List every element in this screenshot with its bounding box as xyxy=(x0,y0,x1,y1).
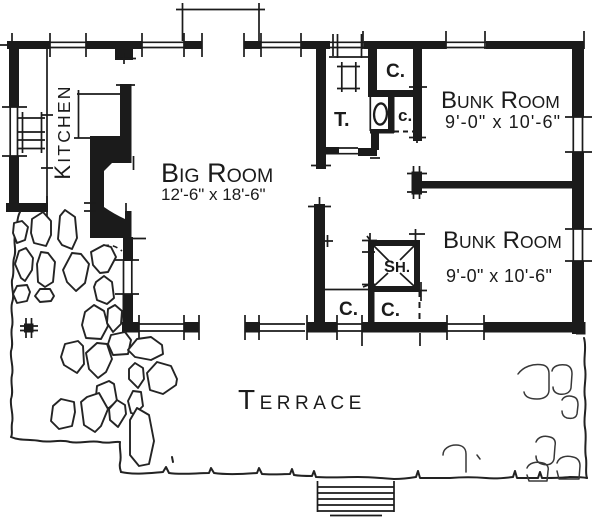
svg-text:BUNK ROOM: BUNK ROOM xyxy=(443,227,562,254)
svg-text:C.: C. xyxy=(339,299,358,320)
svg-text:KITCHEN: KITCHEN xyxy=(50,84,75,179)
svg-text:BUNK ROOM: BUNK ROOM xyxy=(441,87,560,114)
svg-text:9'-0" x 10'-6": 9'-0" x 10'-6" xyxy=(445,112,561,132)
svg-text:12'-6" x 18'-6": 12'-6" x 18'-6" xyxy=(161,185,266,204)
svg-text:C.: C. xyxy=(386,61,405,82)
svg-text:c.: c. xyxy=(398,106,412,125)
svg-text:C.: C. xyxy=(381,300,400,321)
svg-text:T.: T. xyxy=(334,109,350,131)
svg-text:SH.: SH. xyxy=(384,258,410,276)
svg-text:9'-0" x 10'-6": 9'-0" x 10'-6" xyxy=(446,266,552,286)
